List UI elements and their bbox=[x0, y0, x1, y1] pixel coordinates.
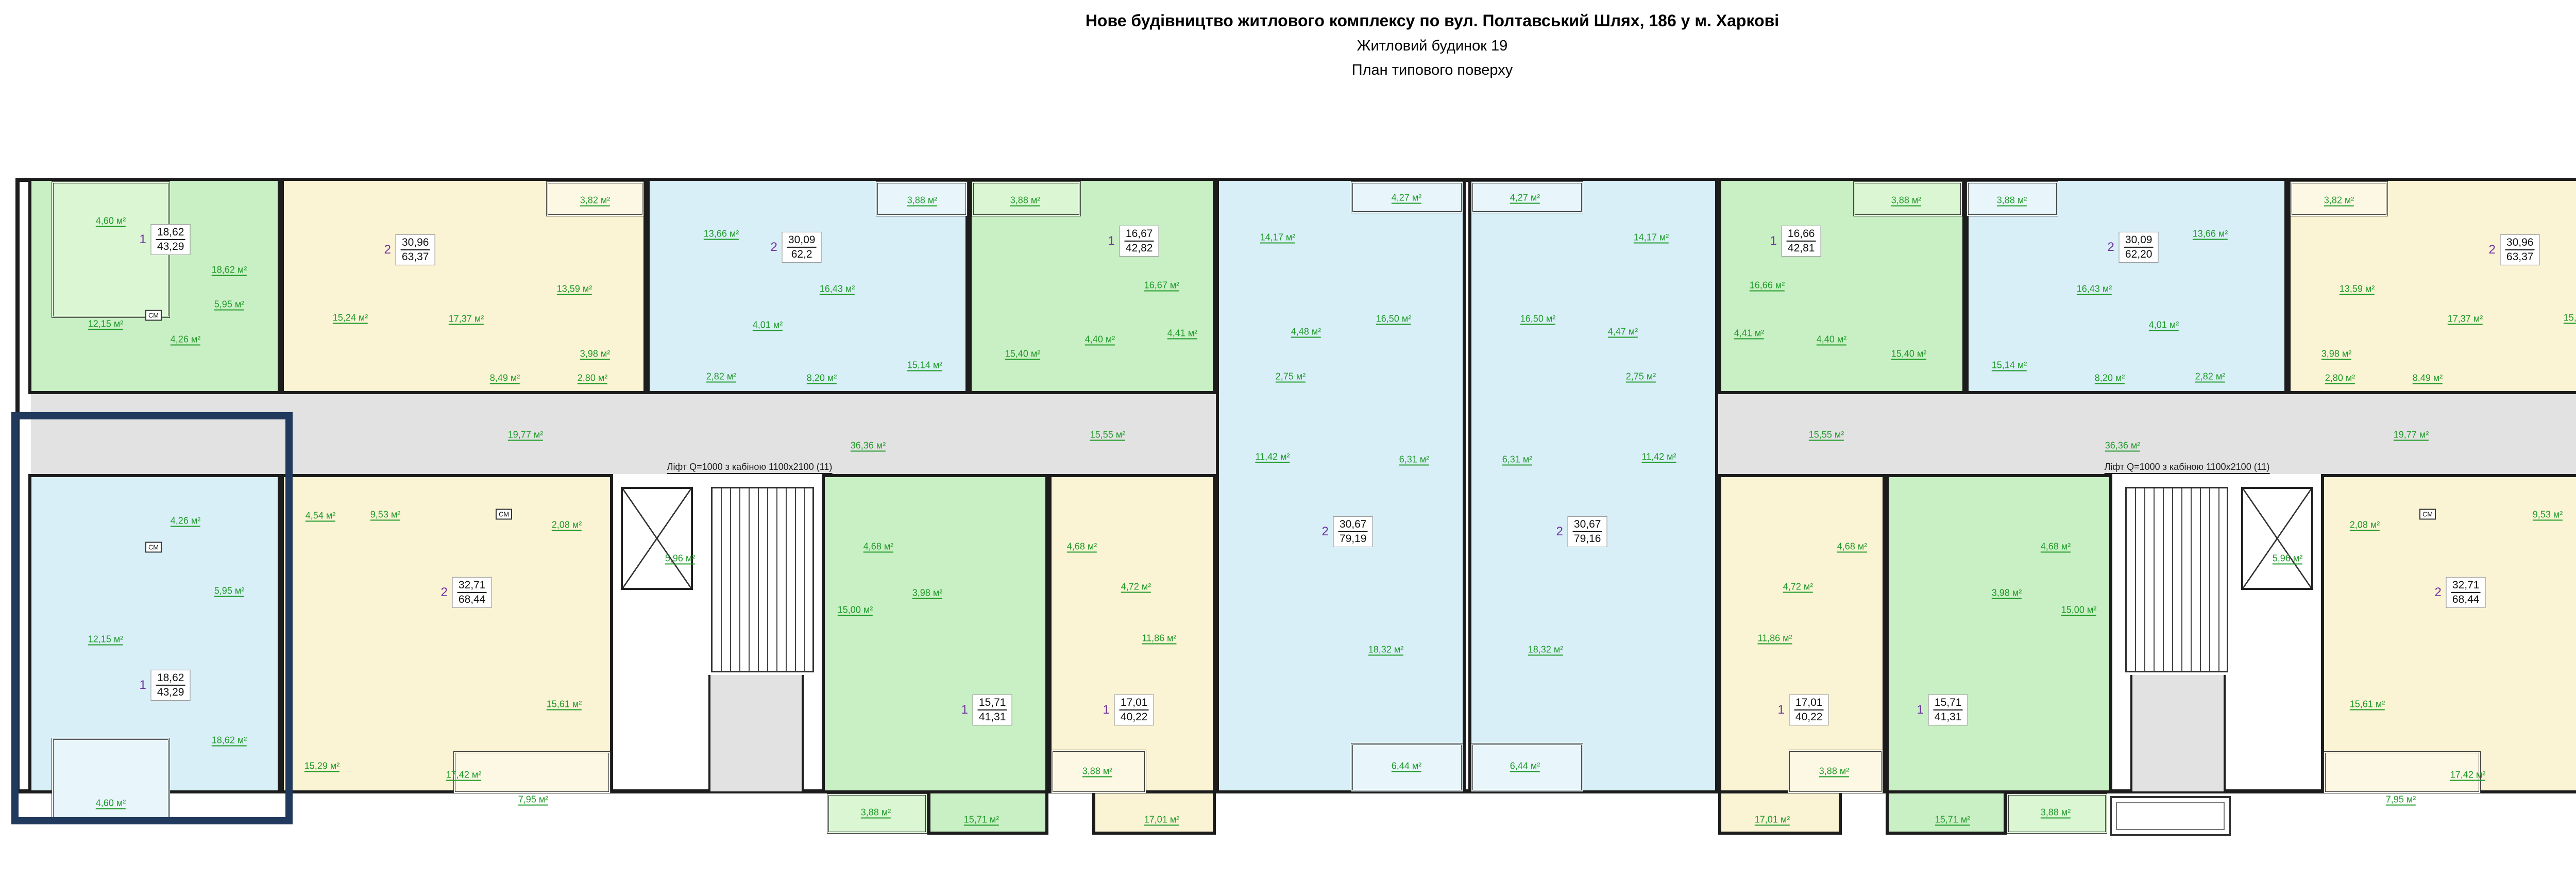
elevator-area-label: 5,96 м² bbox=[2273, 554, 2302, 565]
corridor-area-label: 19,77 м² bbox=[508, 430, 543, 441]
living-area-value: 16,67 bbox=[1125, 228, 1154, 242]
corridor-area-label: 15,55 м² bbox=[1809, 430, 1844, 441]
room-area-label: 4,68 м² bbox=[1067, 542, 1097, 553]
room-area-label: 4,40 м² bbox=[1817, 335, 1846, 346]
elevator-shaft bbox=[2241, 487, 2313, 590]
balcony-area-label: 3,88 м² bbox=[1819, 767, 1849, 777]
total-area-value: 41,31 bbox=[1934, 711, 1963, 723]
living-area-value: 32,71 bbox=[2451, 579, 2481, 593]
total-area-value: 40,22 bbox=[1794, 711, 1824, 723]
room-area-label: 3,98 м² bbox=[1992, 588, 2022, 599]
title-line-2: Житловий будинок 19 bbox=[0, 38, 2576, 55]
apartment-room-count: 2 bbox=[771, 240, 777, 255]
total-area-value: 63,37 bbox=[2505, 250, 2535, 263]
corridor-area-label: 36,36 м² bbox=[2105, 441, 2140, 452]
room-area-label: 13,59 м² bbox=[557, 284, 592, 295]
apartment-areas-box: 17,0140,22 bbox=[1789, 695, 1829, 725]
total-area-value: 43,29 bbox=[156, 240, 185, 253]
apartment-region[interactable] bbox=[1468, 178, 1718, 793]
room-area-label: 16,66 м² bbox=[1750, 281, 1785, 292]
room-area-label: 4,48 м² bbox=[1291, 327, 1321, 338]
total-area-value: 42,82 bbox=[1125, 242, 1154, 255]
balcony-area-label: 3,88 м² bbox=[1010, 196, 1040, 207]
corridor-area-label: 19,77 м² bbox=[2394, 430, 2429, 441]
room-area-label: 17,01 м² bbox=[1755, 815, 1790, 826]
room-area-label: 4,01 м² bbox=[2149, 320, 2179, 331]
elevator-area-label: 5,96 м² bbox=[665, 554, 695, 565]
room-area-label: 3,98 м² bbox=[912, 588, 942, 599]
balcony-area-label: 6,44 м² bbox=[1392, 762, 1421, 772]
room-area-label: 4,01 м² bbox=[753, 320, 783, 331]
total-area-value: 68,44 bbox=[2451, 593, 2481, 606]
total-area-value: 40,22 bbox=[1120, 711, 1149, 723]
apartment-room-count: 2 bbox=[441, 585, 448, 600]
living-area-value: 30,96 bbox=[401, 236, 430, 250]
room-area-label: 4,68 м² bbox=[2041, 542, 2071, 553]
balcony-area-label: 3,82 м² bbox=[580, 196, 610, 207]
room-area-label: 4,72 м² bbox=[1783, 582, 1813, 593]
room-area-label: 2,08 м² bbox=[2350, 520, 2380, 531]
apartment-extension bbox=[1092, 790, 1216, 835]
room-area-label: 17,42 м² bbox=[446, 770, 481, 781]
room-area-label: 2,80 м² bbox=[578, 374, 607, 384]
room-area-label: 6,31 м² bbox=[1502, 455, 1532, 466]
elevator-spec-label: Ліфт Q=1000 з кабіною 1100х2100 (11) bbox=[2105, 462, 2270, 474]
room-area-label: 15,71 м² bbox=[1935, 815, 1970, 826]
apartment-room-count: 1 bbox=[1770, 234, 1777, 248]
room-area-label: 3,98 м² bbox=[2321, 349, 2351, 360]
apartment-areas-box: 30,0962,20 bbox=[2119, 232, 2159, 263]
apartment-room-count: 1 bbox=[140, 232, 146, 247]
apartment-tag: 116,6742,82 bbox=[1108, 226, 1159, 257]
living-area-value: 15,71 bbox=[978, 697, 1007, 711]
room-area-label: 5,95 м² bbox=[214, 300, 244, 311]
room-area-label: 6,31 м² bbox=[1399, 455, 1429, 466]
living-area-value: 17,01 bbox=[1120, 697, 1149, 711]
balcony-area-label: 4,27 м² bbox=[1392, 193, 1421, 204]
balcony-area-label: 7,95 м² bbox=[2386, 795, 2416, 806]
room-area-label: 2,75 м² bbox=[1276, 372, 1306, 383]
apartment-areas-box: 18,6243,29 bbox=[151, 224, 191, 255]
corridor-area-label: 15,55 м² bbox=[1090, 430, 1125, 441]
room-area-label: 4,41 м² bbox=[1167, 329, 1197, 340]
room-area-label: 16,50 м² bbox=[1520, 314, 1555, 325]
room-area-label: 2,75 м² bbox=[1626, 372, 1656, 383]
apartment-room-count: 1 bbox=[1108, 234, 1115, 248]
living-area-value: 15,71 bbox=[1934, 697, 1963, 711]
washing-machine-label: СМ bbox=[145, 310, 162, 321]
total-area-value: 62,20 bbox=[2124, 248, 2154, 261]
total-area-value: 68,44 bbox=[457, 593, 487, 606]
room-area-label: 18,32 м² bbox=[1528, 645, 1563, 656]
drawing-title-block: Нове будівництво житлового комплексу по … bbox=[0, 0, 2576, 79]
room-area-label: 15,40 м² bbox=[1891, 349, 1926, 360]
living-area-value: 16,66 bbox=[1787, 228, 1816, 242]
balcony-area-label: 3,82 м² bbox=[2324, 196, 2354, 207]
total-area-value: 63,37 bbox=[401, 250, 430, 263]
selection-outline[interactable] bbox=[11, 412, 293, 824]
living-area-value: 18,62 bbox=[156, 226, 185, 240]
stair-vestibule bbox=[708, 675, 804, 793]
room-area-label: 15,00 м² bbox=[838, 605, 873, 616]
room-area-label: 11,42 м² bbox=[1641, 452, 1676, 463]
total-area-value: 79,16 bbox=[1573, 532, 1602, 545]
room-area-label: 14,17 м² bbox=[1260, 233, 1295, 244]
stairs bbox=[711, 487, 814, 672]
room-area-label: 16,43 м² bbox=[2077, 284, 2112, 295]
room-area-label: 13,59 м² bbox=[2340, 284, 2375, 295]
apartment-areas-box: 15,7141,31 bbox=[1928, 695, 1968, 725]
room-area-label: 11,42 м² bbox=[1255, 452, 1290, 463]
apartment-room-count: 2 bbox=[2489, 243, 2496, 257]
room-area-label: 15,24 м² bbox=[2564, 313, 2576, 324]
room-area-label: 15,61 м² bbox=[547, 700, 582, 711]
balcony-area-label: 6,44 м² bbox=[1510, 762, 1540, 772]
apartment-areas-box: 16,6742,82 bbox=[1120, 226, 1159, 257]
room-area-label: 4,68 м² bbox=[863, 542, 893, 553]
balcony-area-label: 3,88 м² bbox=[1997, 196, 2027, 207]
total-area-value: 42,81 bbox=[1787, 242, 1816, 255]
living-area-value: 30,96 bbox=[2505, 236, 2535, 250]
apartment-room-count: 2 bbox=[1556, 525, 1563, 539]
apartment-region[interactable] bbox=[1216, 178, 1466, 793]
total-area-value: 79,19 bbox=[1338, 532, 1368, 545]
apartment-tag: 118,6243,29 bbox=[140, 224, 191, 255]
room-area-label: 16,43 м² bbox=[820, 284, 855, 295]
apartment-areas-box: 30,0962,2 bbox=[782, 232, 822, 263]
apartment-region[interactable] bbox=[822, 474, 1048, 793]
room-area-label: 3,98 м² bbox=[580, 349, 610, 360]
apartment-extension bbox=[1718, 790, 1842, 835]
room-area-label: 8,49 м² bbox=[490, 374, 520, 384]
room-area-label: 17,42 м² bbox=[2450, 770, 2485, 781]
room-area-label: 4,47 м² bbox=[1608, 327, 1638, 338]
balcony-area-label: 4,60 м² bbox=[96, 216, 126, 227]
apartment-room-count: 2 bbox=[2435, 585, 2442, 600]
elevator-shaft bbox=[621, 487, 693, 590]
apartment-room-count: 1 bbox=[1778, 703, 1785, 717]
apartment-areas-box: 30,9663,37 bbox=[396, 234, 435, 265]
room-area-label: 9,53 м² bbox=[370, 510, 400, 521]
entrance-canopy bbox=[2110, 796, 2231, 836]
room-area-label: 4,54 м² bbox=[306, 511, 335, 522]
room-area-label: 15,61 м² bbox=[2350, 700, 2385, 711]
room-area-label: 8,20 м² bbox=[807, 374, 837, 384]
balcony-area-label: 7,95 м² bbox=[518, 795, 548, 806]
room-area-label: 15,14 м² bbox=[907, 361, 942, 371]
room-area-label: 4,41 м² bbox=[1734, 329, 1764, 340]
apartment-tag: 230,6779,16 bbox=[1556, 516, 1607, 547]
apartment-tag: 117,0140,22 bbox=[1778, 695, 1829, 725]
apartment-tag: 230,0962,20 bbox=[2108, 232, 2159, 263]
apartment-tag: 117,0140,22 bbox=[1103, 695, 1154, 725]
room-area-label: 15,24 м² bbox=[333, 313, 368, 324]
balcony-area-label: 3,88 м² bbox=[2041, 808, 2071, 819]
total-area-value: 62,2 bbox=[787, 248, 817, 261]
room-area-label: 16,67 м² bbox=[1144, 281, 1179, 292]
apartment-tag: 230,6779,19 bbox=[1322, 516, 1373, 547]
room-area-label: 18,62 м² bbox=[212, 265, 247, 276]
apartment-tag: 232,7168,44 bbox=[2435, 577, 2486, 608]
room-area-label: 15,71 м² bbox=[964, 815, 999, 826]
room-area-label: 13,66 м² bbox=[2193, 229, 2228, 240]
apartment-region[interactable] bbox=[1048, 474, 1216, 793]
apartment-tag: 230,9663,37 bbox=[2489, 234, 2540, 265]
floor-plan: Нове будівництво житлового комплексу по … bbox=[0, 0, 2576, 896]
room-area-label: 15,14 м² bbox=[1992, 361, 2027, 371]
apartment-tag: 232,7168,44 bbox=[441, 577, 492, 608]
room-area-label: 2,08 м² bbox=[552, 520, 582, 531]
room-area-label: 4,40 м² bbox=[1085, 335, 1115, 346]
room-area-label: 17,01 м² bbox=[1144, 815, 1179, 826]
balcony-area-label: 3,88 м² bbox=[1891, 196, 1921, 207]
living-area-value: 30,09 bbox=[2124, 234, 2154, 248]
apartment-room-count: 2 bbox=[1322, 525, 1329, 539]
room-area-label: 16,50 м² bbox=[1376, 314, 1411, 325]
washing-machine-label: СМ bbox=[2419, 509, 2436, 520]
balcony-area-label: 3,88 м² bbox=[907, 196, 937, 207]
apartment-areas-box: 32,7168,44 bbox=[2446, 577, 2486, 608]
apartment-areas-box: 16,6642,81 bbox=[1782, 226, 1821, 257]
room-area-label: 12,15 м² bbox=[88, 319, 123, 330]
apartment-tag: 115,7141,31 bbox=[961, 695, 1012, 725]
apartment-room-count: 2 bbox=[384, 243, 391, 257]
room-area-label: 4,26 м² bbox=[171, 335, 200, 346]
apartment-areas-box: 30,6779,19 bbox=[1333, 516, 1373, 547]
room-area-label: 15,00 м² bbox=[2061, 605, 2096, 616]
room-area-label: 8,20 м² bbox=[2095, 374, 2125, 384]
room-area-label: 2,82 м² bbox=[706, 372, 736, 383]
balcony-area-label: 3,88 м² bbox=[861, 808, 891, 819]
room-area-label: 4,68 м² bbox=[1837, 542, 1867, 553]
apartment-tag: 115,7141,31 bbox=[1917, 695, 1968, 725]
apartment-tag: 230,9663,37 bbox=[384, 234, 435, 265]
room-area-label: 15,29 м² bbox=[304, 762, 340, 772]
room-area-label: 4,72 м² bbox=[1121, 582, 1151, 593]
apartment-room-count: 1 bbox=[1103, 703, 1110, 717]
title-line-3: План типового поверху bbox=[0, 62, 2576, 79]
apartment-areas-box: 30,6779,16 bbox=[1568, 516, 1607, 547]
room-area-label: 18,32 м² bbox=[1368, 645, 1403, 656]
apartment-room-count: 1 bbox=[1917, 703, 1924, 717]
living-area-value: 32,71 bbox=[457, 579, 487, 593]
balcony-area-label: 3,88 м² bbox=[1082, 767, 1112, 777]
corridor-area-label: 36,36 м² bbox=[851, 441, 886, 452]
stair-vestibule bbox=[2130, 675, 2226, 793]
apartment-room-count: 2 bbox=[2108, 240, 2114, 255]
stairs bbox=[2125, 487, 2228, 672]
room-area-label: 17,37 м² bbox=[449, 314, 484, 325]
apartment-extension bbox=[1886, 790, 2007, 835]
apartment-region[interactable] bbox=[1886, 474, 2112, 793]
room-area-label: 2,82 м² bbox=[2195, 372, 2225, 383]
room-area-label: 11,86 м² bbox=[1757, 634, 1792, 645]
elevator-spec-label: Ліфт Q=1000 з кабіною 1100х2100 (11) bbox=[667, 462, 833, 474]
room-area-label: 2,80 м² bbox=[2325, 374, 2355, 384]
living-area-value: 30,67 bbox=[1573, 518, 1602, 532]
balcony-area-label: 4,27 м² bbox=[1510, 193, 1540, 204]
room-area-label: 15,40 м² bbox=[1005, 349, 1040, 360]
apartment-areas-box: 30,9663,37 bbox=[2500, 234, 2540, 265]
apartment-areas-box: 32,7168,44 bbox=[452, 577, 492, 608]
washing-machine-label: СМ bbox=[496, 509, 512, 520]
living-area-value: 30,09 bbox=[787, 234, 817, 248]
room-area-label: 11,86 м² bbox=[1142, 634, 1176, 645]
title-line-1: Нове будівництво житлового комплексу по … bbox=[0, 11, 2576, 30]
room-area-label: 8,49 м² bbox=[2413, 374, 2443, 384]
apartment-tag: 230,0962,2 bbox=[771, 232, 822, 263]
living-area-value: 17,01 bbox=[1794, 697, 1824, 711]
apartment-tag: 116,6642,81 bbox=[1770, 226, 1821, 257]
total-area-value: 41,31 bbox=[978, 711, 1007, 723]
apartment-region[interactable] bbox=[1718, 474, 1886, 793]
room-area-label: 9,53 м² bbox=[2533, 510, 2563, 521]
apartment-extension bbox=[927, 790, 1048, 835]
living-area-value: 30,67 bbox=[1338, 518, 1368, 532]
room-area-label: 13,66 м² bbox=[704, 229, 739, 240]
apartment-room-count: 1 bbox=[961, 703, 968, 717]
room-area-label: 17,37 м² bbox=[2448, 314, 2483, 325]
room-area-label: 14,17 м² bbox=[1634, 233, 1669, 244]
apartment-areas-box: 15,7141,31 bbox=[973, 695, 1012, 725]
apartment-areas-box: 17,0140,22 bbox=[1114, 695, 1154, 725]
